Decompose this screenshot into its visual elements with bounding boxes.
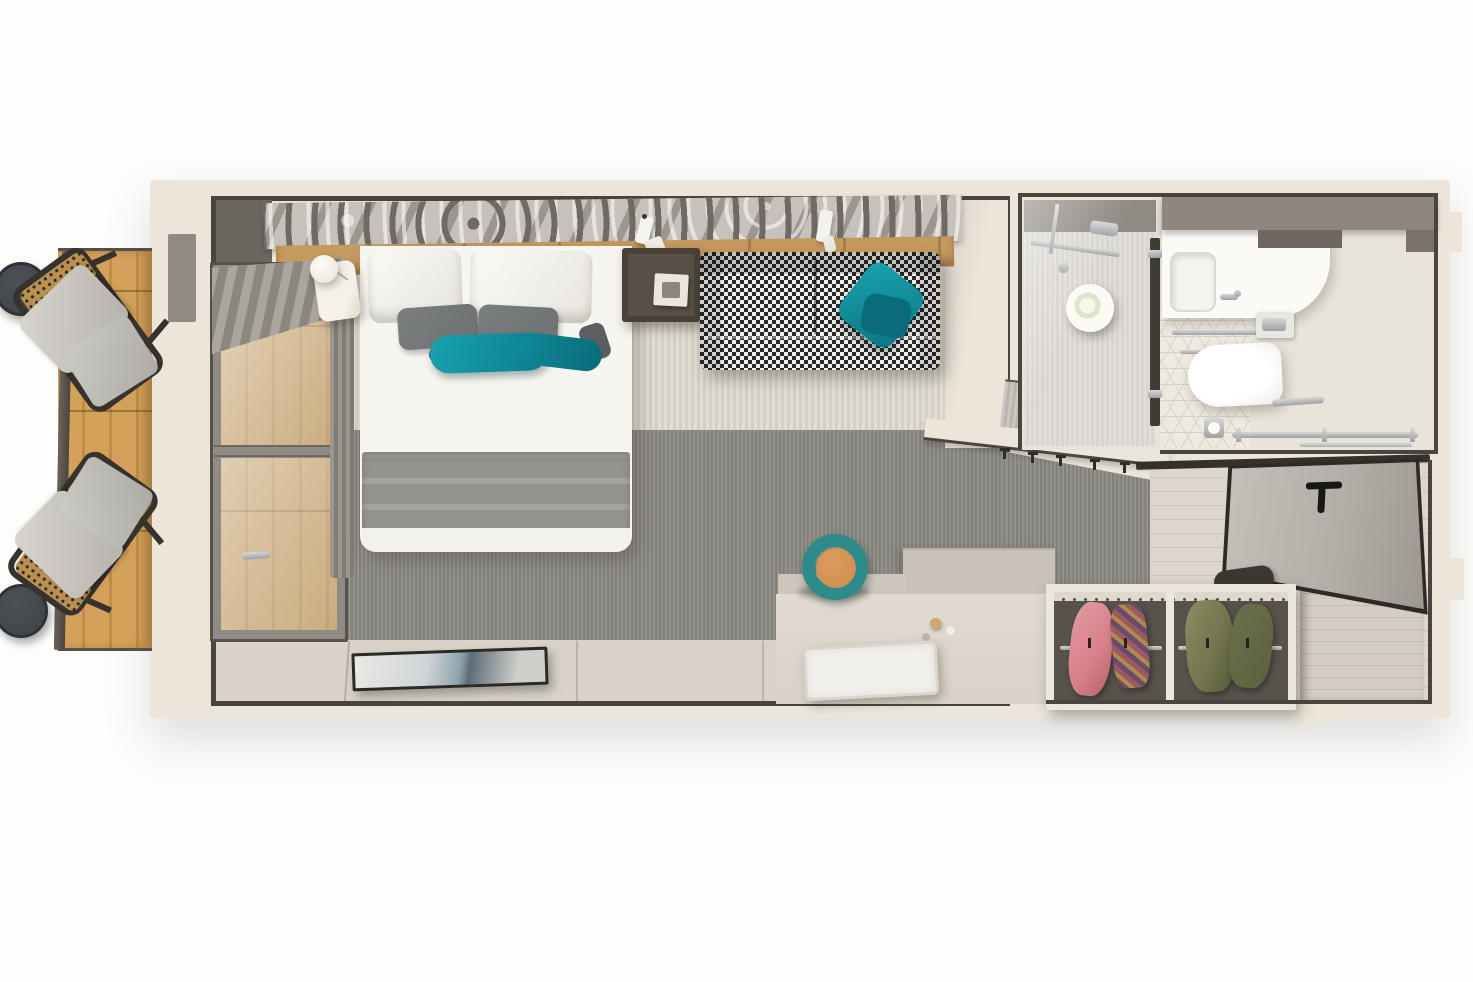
wall-tab (1292, 716, 1332, 725)
window-mid-rail (214, 445, 344, 457)
bathroom-wall-top (1022, 193, 1437, 197)
bath-towel-rail-lower (1300, 443, 1412, 447)
sofa-cushion-split (814, 258, 817, 334)
wall-tab (1448, 558, 1464, 600)
hanger-hook (1206, 638, 1209, 648)
bathroom-wall-bottom (1160, 450, 1438, 454)
wardrobe (1046, 584, 1296, 710)
overhead-shelf (1162, 196, 1437, 230)
chair-leg (136, 514, 164, 545)
curtain (330, 282, 354, 578)
stateroom-floorplan (0, 0, 1473, 982)
shower-glass-sheen (1024, 200, 1156, 446)
hanger-hook (1124, 638, 1127, 648)
flush-buttons (1262, 318, 1286, 331)
coat-hook (1031, 452, 1034, 463)
desk-trinket (946, 626, 955, 635)
coat-hook (1123, 462, 1126, 473)
toilet-paper (1208, 422, 1220, 434)
coat-hook (1003, 448, 1006, 459)
bed-foot-strip (362, 528, 630, 552)
gray-blanket (362, 452, 630, 530)
bathroom-wall-left (1018, 193, 1022, 450)
wash-basin (1170, 252, 1216, 312)
console-seam (576, 641, 578, 702)
hanger-hook (1246, 638, 1249, 648)
wall-fixture (168, 234, 196, 322)
rail-post (1410, 428, 1415, 442)
pink-clothes (1065, 600, 1117, 698)
rail-post (1322, 428, 1327, 442)
desk-chair-seat (816, 548, 856, 588)
door-handle-stem (1317, 487, 1325, 513)
desk-trinket (930, 618, 941, 629)
deck-edge-bottom (58, 648, 152, 651)
hanger-hook (1088, 638, 1091, 648)
sconce-dot (642, 214, 647, 219)
chair-leg (82, 596, 112, 614)
bathroom-wall-right (1434, 193, 1438, 453)
flat-tv (351, 647, 548, 692)
under-shelf-bracket (1406, 230, 1437, 252)
globe-lamp (310, 255, 338, 283)
rail-post (1236, 428, 1241, 442)
entry-wall-right (1428, 460, 1432, 704)
entry-wall-bottom (1046, 700, 1432, 704)
coat-hook (1059, 455, 1062, 466)
sofa-armrest-left (700, 252, 722, 370)
coat-hook (1093, 459, 1096, 470)
sofa-back-shade (700, 252, 940, 274)
sofa-armrest-right (918, 252, 940, 370)
wall-tab (1448, 212, 1462, 252)
glass-tint-lower (221, 458, 337, 630)
photo-card-print (662, 282, 680, 298)
faucet-base (1234, 290, 1241, 297)
toilet (1186, 342, 1283, 409)
wardrobe-divider (1166, 592, 1174, 702)
patterned-clothes (1108, 603, 1151, 690)
serving-tray (803, 641, 940, 702)
desk-back-ledge (903, 548, 1055, 596)
chair-leg (87, 250, 117, 268)
desk-trinket (922, 633, 930, 641)
console-seam (762, 641, 764, 702)
under-shelf-bracket (1258, 230, 1342, 248)
green-clothes-dark (1226, 602, 1277, 690)
